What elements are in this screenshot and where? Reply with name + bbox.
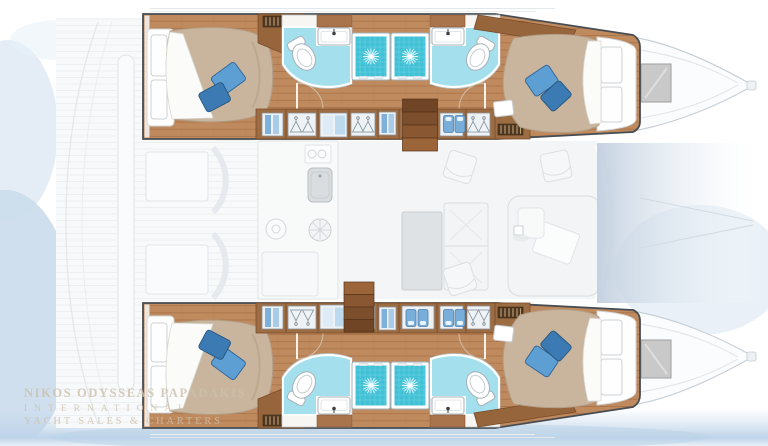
galley-ghost [258,141,338,299]
cockpit-hatch [146,245,208,294]
saloon-table [402,212,442,290]
companionway-stairs-starboard [344,282,374,332]
bow-gap-shading [597,143,768,303]
cockpit-hatch [146,152,208,201]
companionway-stairs-port [403,99,438,151]
floor-plan-illustration [0,0,768,446]
floor-plan-canvas: NIKOS ODYSSEAS PAPADAKIS INTERNATIONAL Y… [0,0,768,446]
saloon-ghost [258,141,612,300]
mast-post [514,226,523,235]
forward-lounge-ghost [508,196,600,296]
